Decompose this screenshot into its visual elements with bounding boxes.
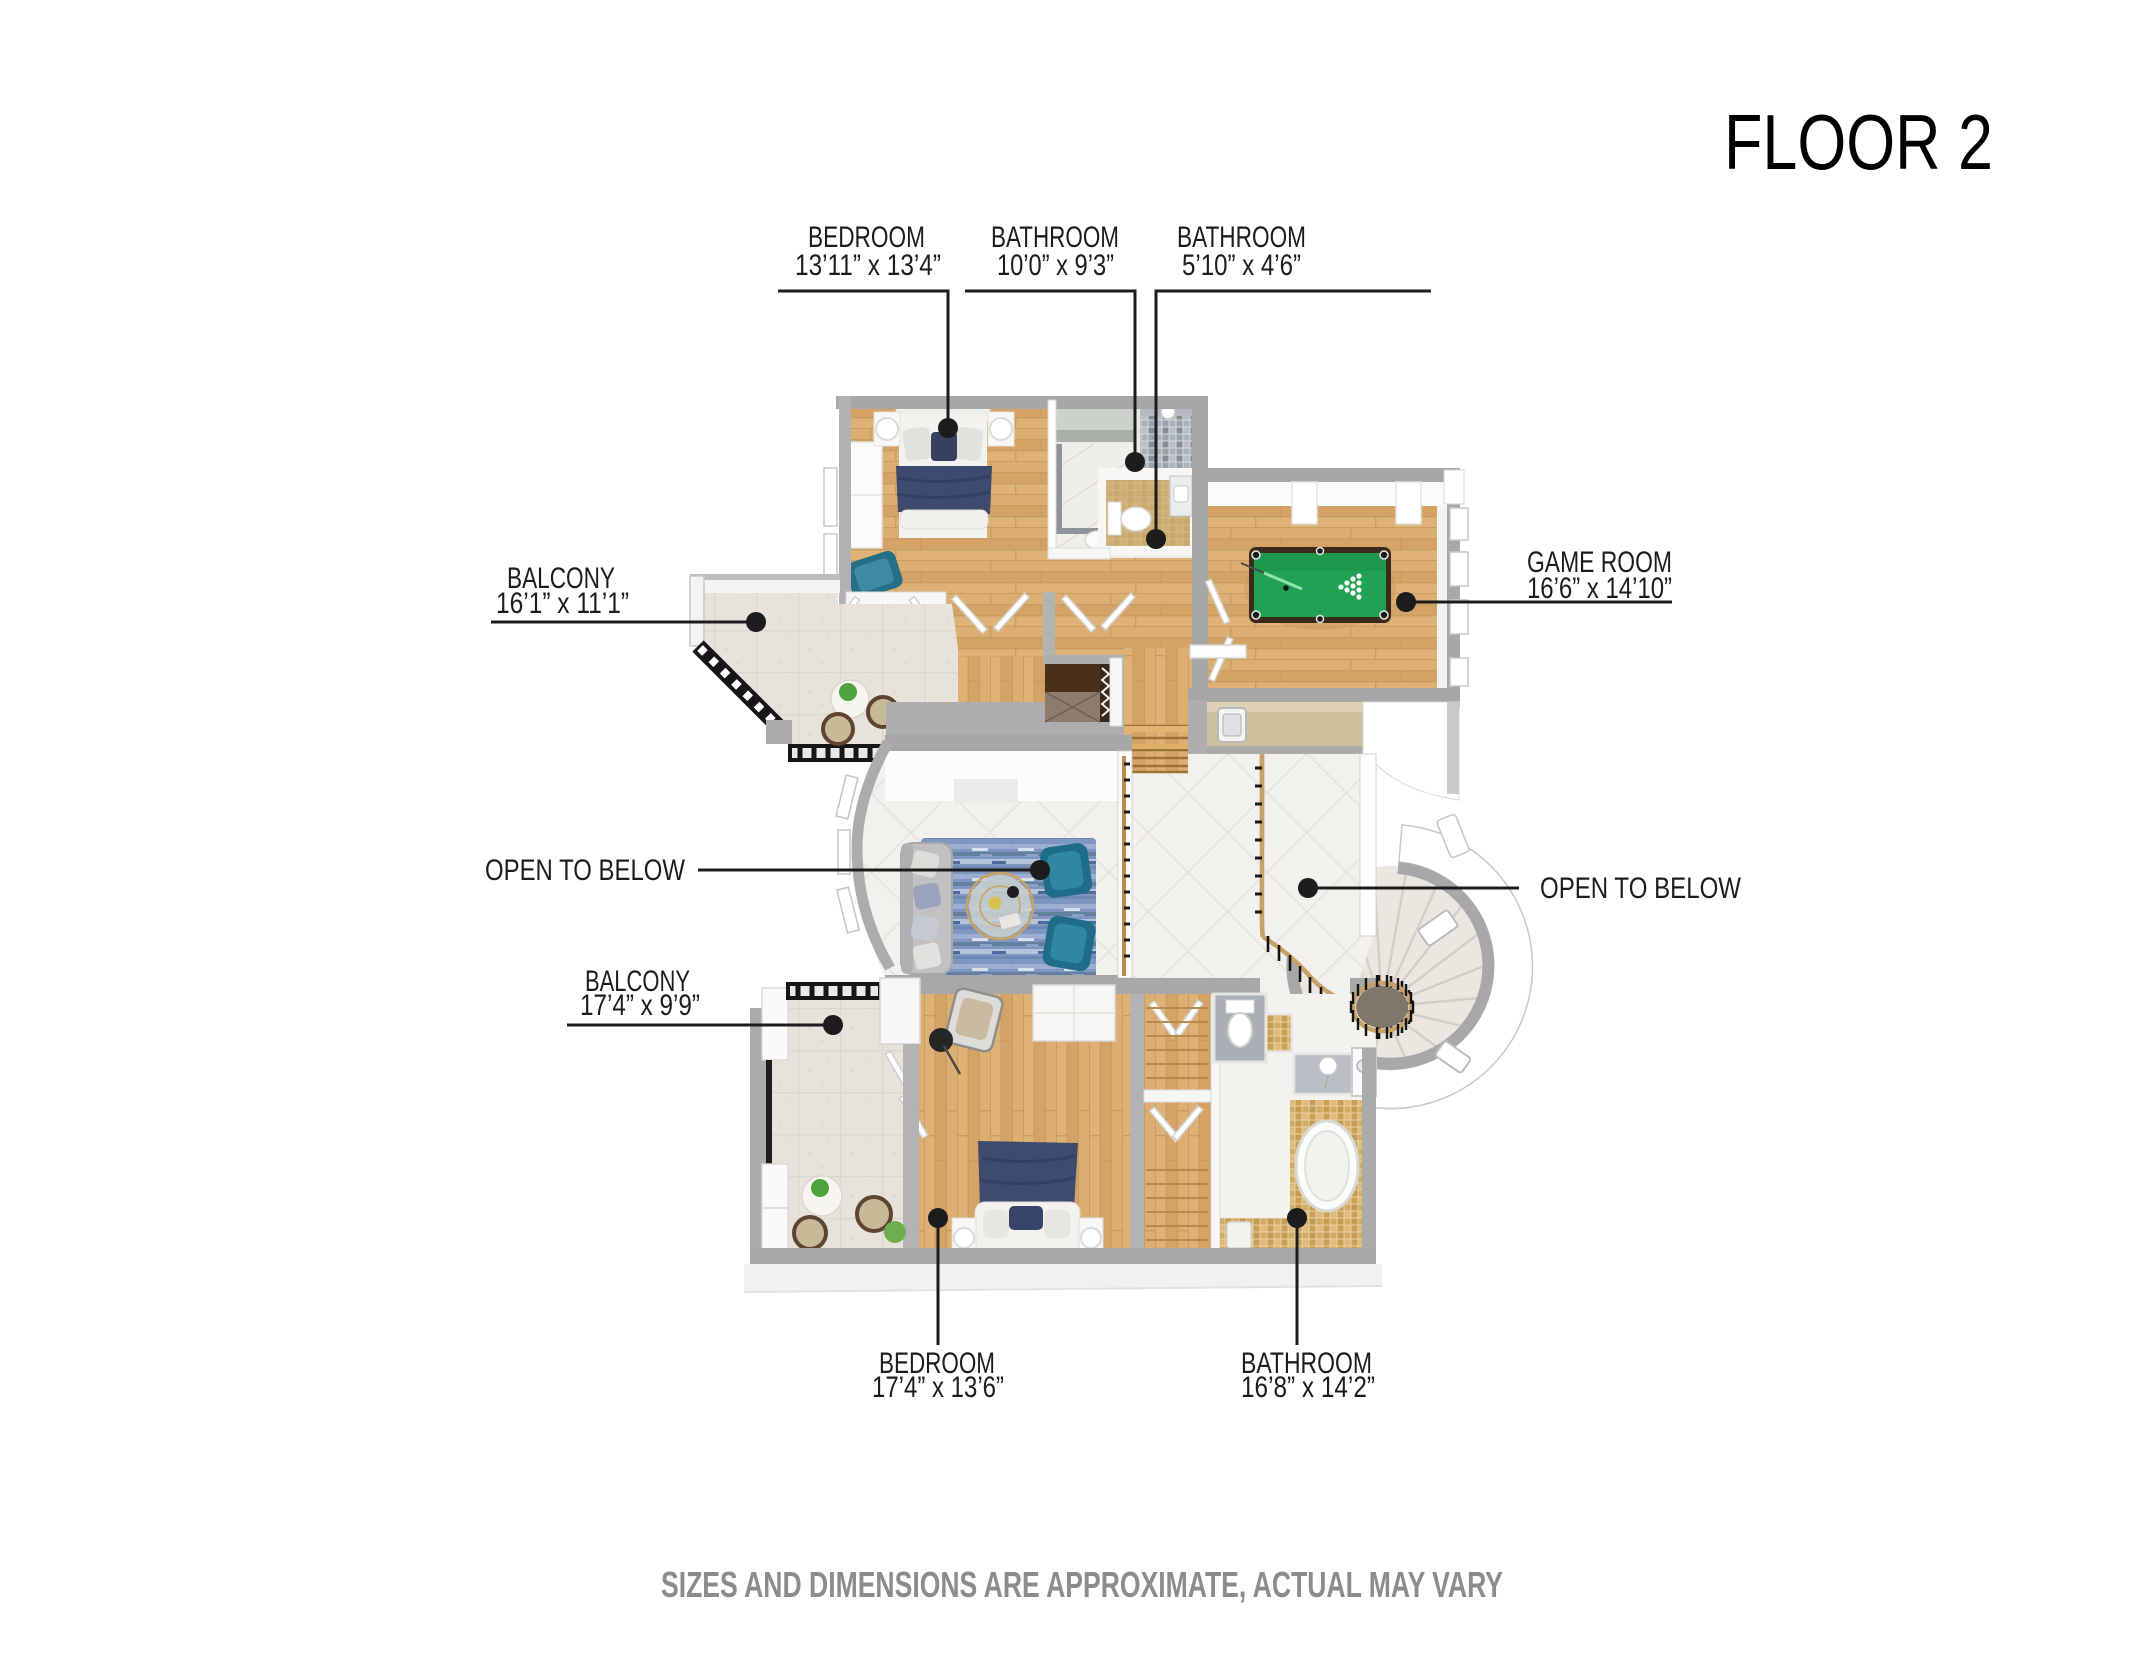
svg-text:16’6” x 14’10”: 16’6” x 14’10” xyxy=(1527,572,1672,605)
svg-text:17’4” x 9’9”: 17’4” x 9’9” xyxy=(580,989,700,1022)
svg-text:FLOOR 2: FLOOR 2 xyxy=(1724,98,1993,186)
svg-text:5’10” x 4’6”: 5’10” x 4’6” xyxy=(1182,249,1301,282)
svg-text:SIZES AND DIMENSIONS ARE APPRO: SIZES AND DIMENSIONS ARE APPROXIMATE, AC… xyxy=(661,1564,1503,1605)
svg-text:10’0” x 9’3”: 10’0” x 9’3” xyxy=(997,249,1114,282)
svg-text:16’8” x 14’2”: 16’8” x 14’2” xyxy=(1241,1371,1375,1404)
svg-text:16’1” x 11’1”: 16’1” x 11’1” xyxy=(496,587,629,620)
svg-text:OPEN TO BELOW: OPEN TO BELOW xyxy=(485,854,686,887)
svg-text:OPEN TO BELOW: OPEN TO BELOW xyxy=(1540,872,1742,905)
svg-text:13’11” x 13’4”: 13’11” x 13’4” xyxy=(795,249,941,282)
svg-text:17’4” x 13’6”: 17’4” x 13’6” xyxy=(872,1371,1004,1404)
